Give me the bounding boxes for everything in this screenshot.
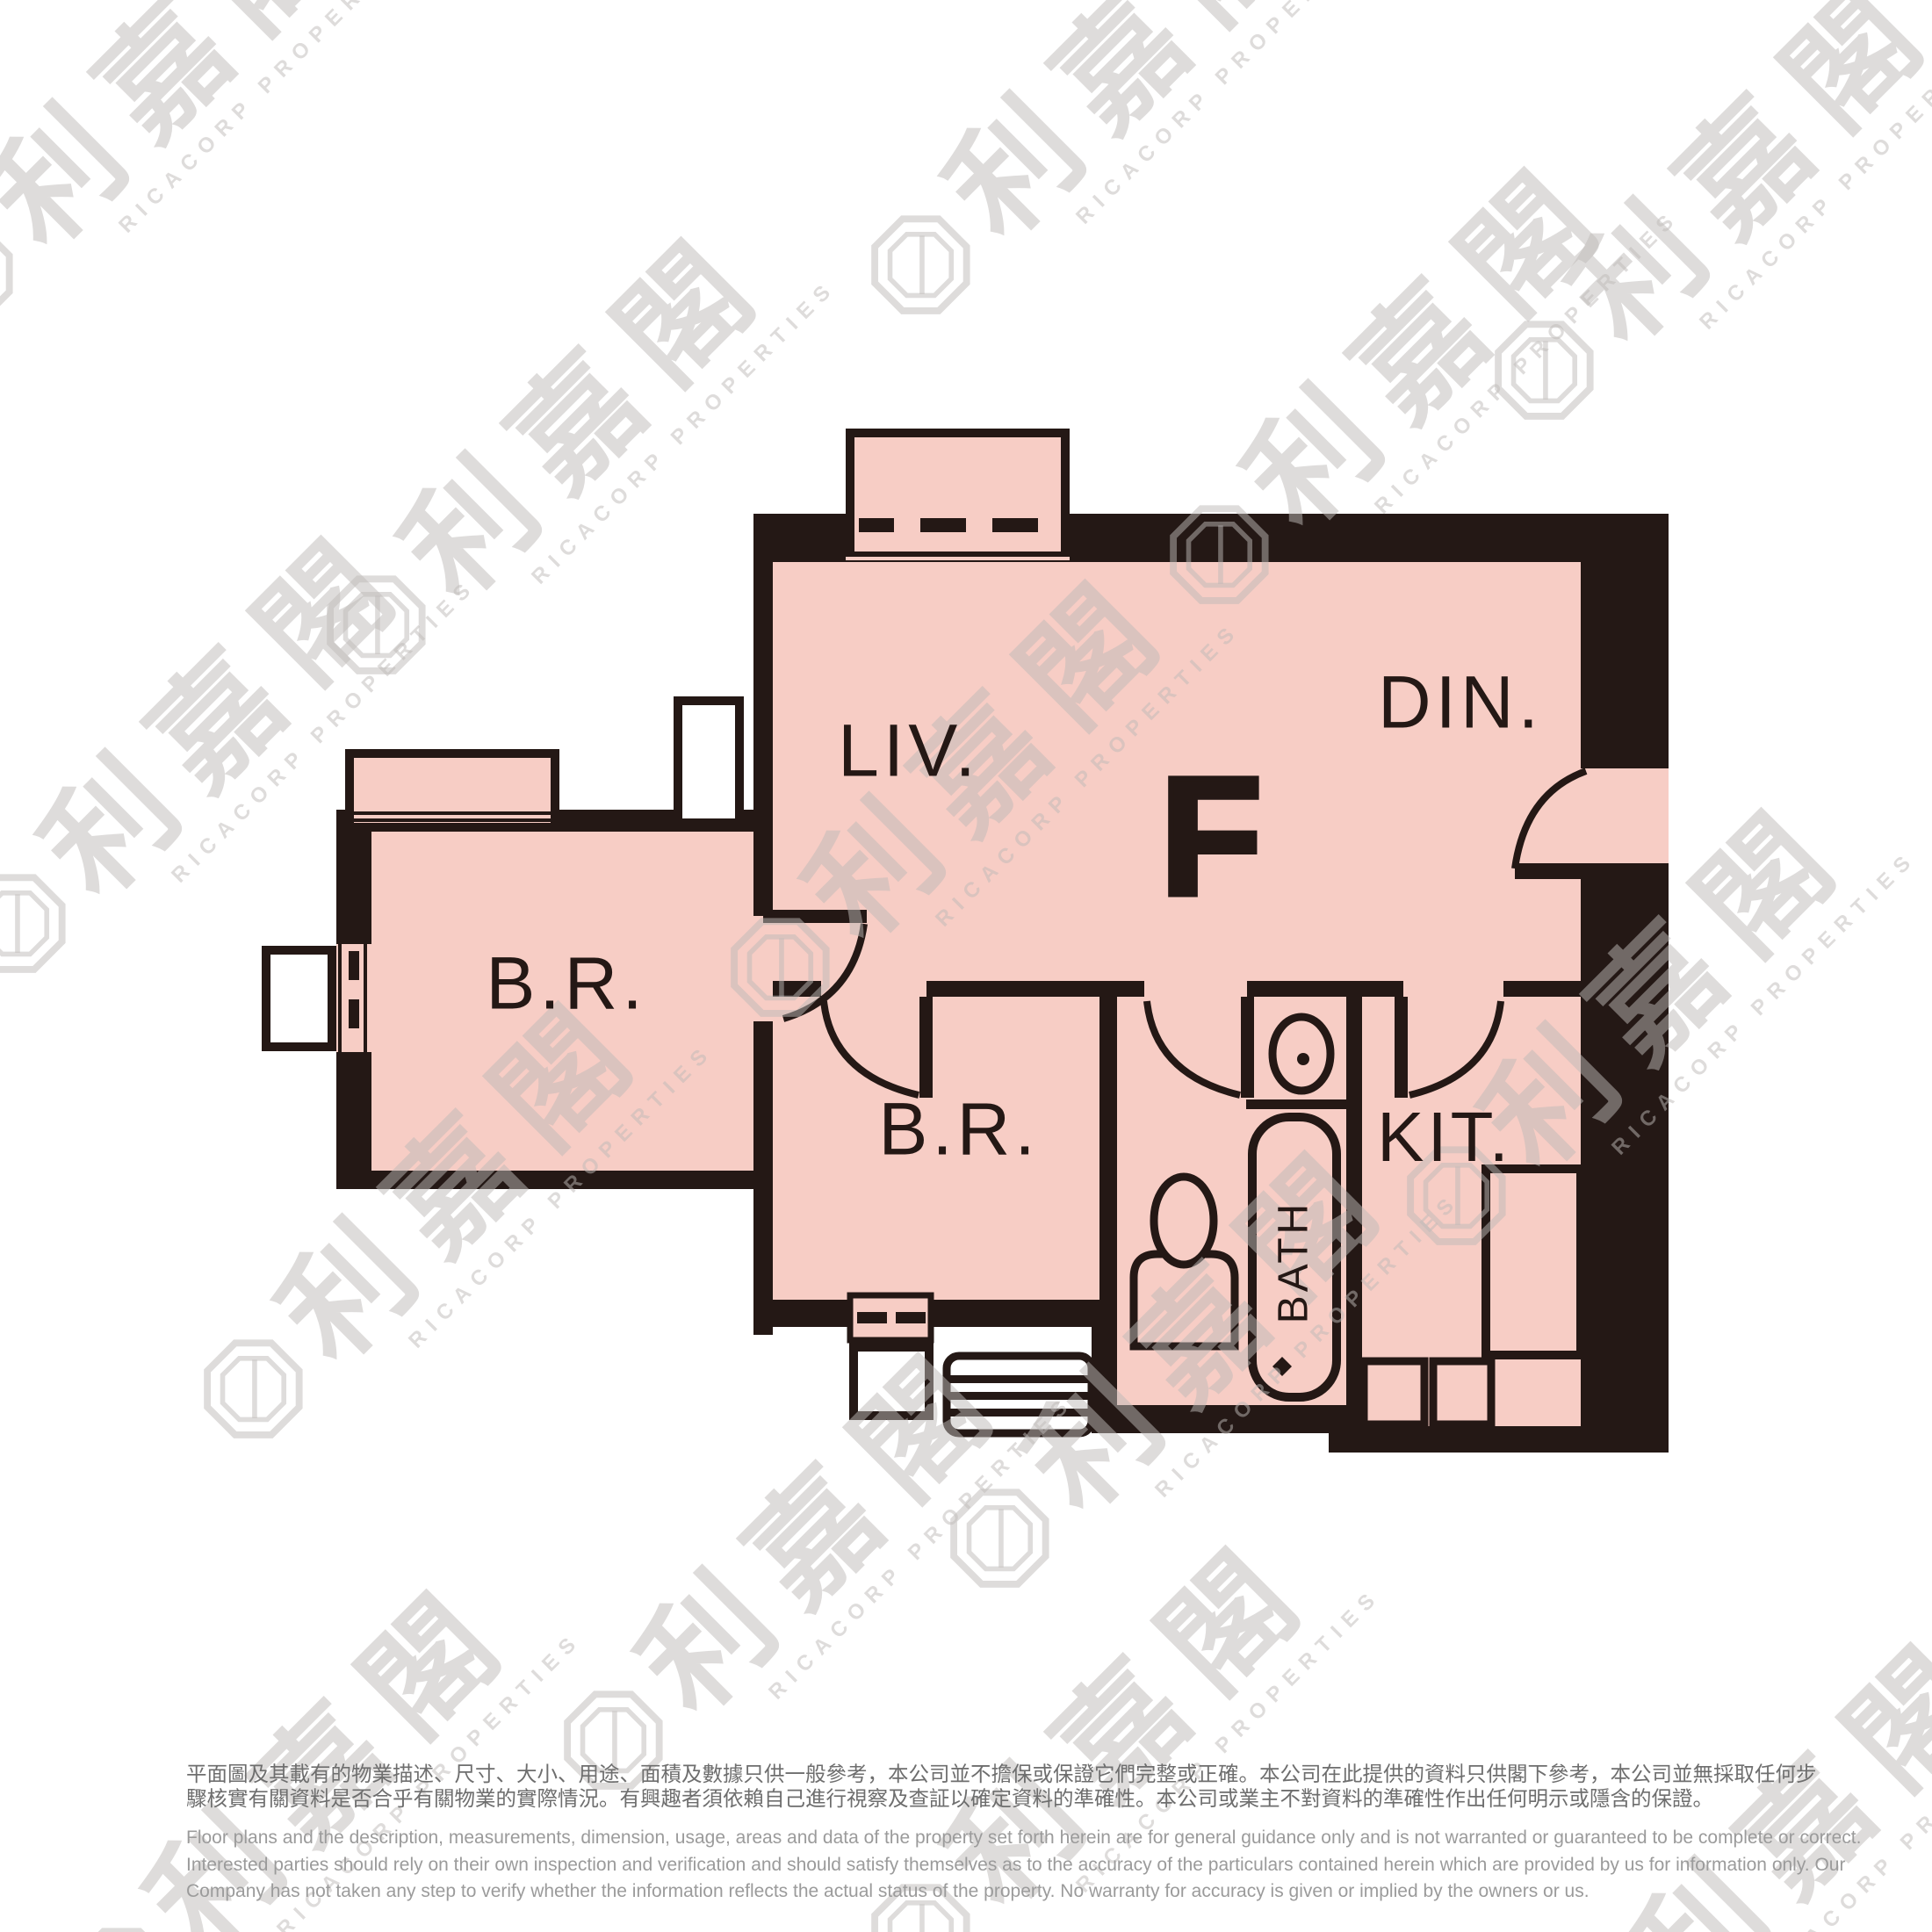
disclaimer-en-line-3: Company has not taken any step to verify… [186, 1878, 1767, 1906]
bathroom-door-leaf [1241, 997, 1254, 1098]
bay-window-sill-line [846, 551, 1070, 557]
window-frame-line [338, 944, 342, 1052]
floor-plan-drawing [0, 0, 1932, 1932]
wall-hall-1 [773, 981, 821, 997]
wall-bathroom-bottom [1092, 1405, 1362, 1433]
wall-hall-4 [1503, 981, 1581, 997]
wall-bedroom-2-bottom [753, 1300, 1117, 1327]
wall-bedroom-2-right [1099, 997, 1117, 1300]
unit-label: F [1159, 739, 1264, 934]
wall-living-left-upper [753, 514, 773, 916]
window-frame-line [364, 944, 367, 1052]
bay-window-floor [846, 429, 1070, 560]
bedroom-1-door-gap [753, 916, 773, 1021]
kitchen-stove [1433, 1361, 1491, 1424]
bay-window-dashed-opening [859, 518, 1038, 532]
kitchen-sink [1364, 1361, 1424, 1424]
disclaimer-zh-line-1: 平面圖及其載有的物業描述、尺寸、大小、用途、面積及數據只供一般參考，本公司並不擔… [186, 1762, 1767, 1786]
living-bay-window [846, 429, 1070, 560]
ac-platform [266, 950, 332, 1047]
wall-right-upper [1581, 514, 1669, 768]
louvre-bar [950, 1375, 1088, 1383]
kitchen-door-leaf [1395, 997, 1408, 1098]
bathroom-door-gap [1144, 981, 1247, 997]
window-mullion [349, 951, 359, 980]
floor-plan-page: LIV. DIN. F B.R. B.R. KIT. BATH 利嘉閣RICAC… [0, 0, 1932, 1932]
disclaimer-en-line-1: Floor plans and the description, measure… [186, 1825, 1767, 1852]
disclaimer-en-line-2: Interested parties should rely on their … [186, 1852, 1767, 1879]
bedroom-2-door-leaf [919, 997, 933, 1098]
dining-room-label: DIN. [1378, 660, 1543, 746]
toilet-seat-symbol [1154, 1177, 1214, 1265]
wall-basin-niche [1246, 1099, 1349, 1109]
disclaimer: 平面圖及其載有的物業描述、尺寸、大小、用途、面積及數據只供一般參考，本公司並不擔… [186, 1762, 1767, 1906]
living-room-label: LIV. [838, 709, 980, 794]
wall-kitchen-left [1346, 981, 1362, 1426]
ac-platform [854, 1347, 929, 1416]
bedroom-1-door-leaf [763, 910, 867, 923]
kitchen-door-gap [1403, 981, 1503, 997]
bedroom-1-bay-window [345, 749, 559, 832]
wall-bedroom-1-bottom [336, 1171, 773, 1189]
kitchen-counter [1486, 1169, 1581, 1355]
window-mullion [349, 999, 359, 1028]
wall-bedroom-1-left-lower [336, 1052, 371, 1189]
kitchen-label: KIT. [1377, 1097, 1512, 1178]
entrance-doorway-floor [1581, 768, 1669, 874]
louvre-bar [950, 1392, 1088, 1400]
wall-hall-3 [1247, 981, 1403, 997]
louvre-bar [950, 1409, 1088, 1417]
wall-hall-2 [926, 981, 1144, 997]
wall-bottom-right [1329, 1426, 1669, 1453]
window-dash [896, 1312, 926, 1323]
window-dash [857, 1312, 887, 1323]
bedroom-2-label: B.R. [878, 1087, 1039, 1172]
entrance-door-leaf [1515, 863, 1669, 879]
bathroom-label: BATH [1270, 1200, 1318, 1323]
bedroom-1-label: B.R. [486, 941, 646, 1027]
glazing-line [354, 811, 553, 815]
bedroom-1-window [266, 944, 371, 1052]
disclaimer-zh-line-2: 驟核實有關資料是否合乎有關物業的實際情況。有興趣者須依賴自己進行視察及查証以確定… [186, 1786, 1767, 1811]
wall-right-lower [1581, 874, 1669, 1426]
living-side-window-box [678, 701, 739, 823]
glazing-line [354, 818, 553, 822]
basin-drain-dot [1297, 1053, 1309, 1065]
